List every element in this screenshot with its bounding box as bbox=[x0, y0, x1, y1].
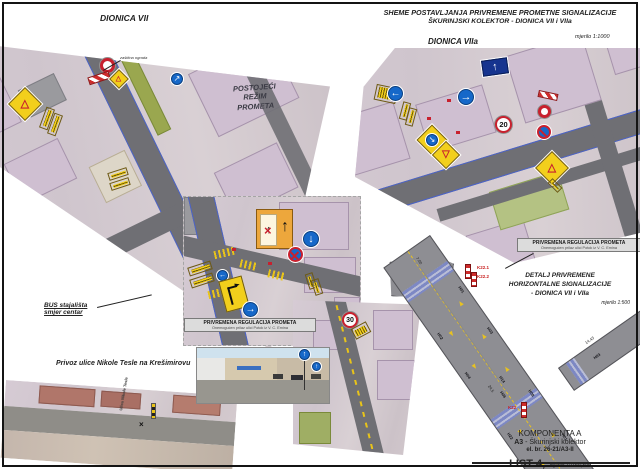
temp-regulation-subtitle: Onemogućen prilaz ulici Potok iz V. C. E… bbox=[187, 326, 313, 330]
marker-label: H01 bbox=[457, 285, 465, 294]
lane-arrow-icon bbox=[449, 331, 455, 337]
mandatory-direction-sign: → bbox=[458, 89, 474, 105]
sign-position-mark bbox=[232, 248, 236, 251]
list-scale: mjerilo 1:1000,500 bbox=[550, 463, 591, 469]
lane-arrow-icon bbox=[472, 364, 478, 370]
elaborate-number: el. br. 26-21/A3-II bbox=[470, 447, 630, 453]
speed-limit-20-sign: 20 bbox=[495, 116, 512, 133]
marker-label: H02 bbox=[436, 332, 444, 341]
plan-sheet: H30 H01 H02 H03 H04 H14 H06 H08 H22 H01 … bbox=[0, 0, 640, 469]
photo-roundabout-sign: ↑ bbox=[312, 362, 321, 371]
arrow-up-icon: ↑ bbox=[315, 364, 318, 370]
label-dionica-viia: DIONICA VIIa bbox=[428, 37, 478, 46]
slash-icon bbox=[539, 129, 547, 137]
cross-road bbox=[0, 201, 192, 334]
mandatory-direction-sign: ↓ bbox=[303, 231, 319, 247]
warning-triangle-icon: △ bbox=[116, 75, 121, 82]
pedestrian-crossing bbox=[566, 358, 589, 385]
warning-triangle-icon: △ bbox=[21, 99, 29, 110]
project-code: A3 bbox=[514, 439, 523, 446]
photo-car bbox=[311, 374, 321, 379]
existing-regime-label: POSTOJEĆI REŽIM PROMETA bbox=[212, 80, 298, 114]
sign-position-mark bbox=[456, 131, 460, 134]
speed-limit-20-value: 20 bbox=[499, 121, 507, 129]
arrow-up-icon: ↑ bbox=[491, 61, 498, 74]
project-label: A3 - Škurinjski kolektor bbox=[470, 439, 630, 446]
building-block bbox=[377, 360, 415, 400]
k22-label: K22.1 bbox=[477, 265, 489, 270]
bus-stop-note-line2: smjer centar bbox=[44, 309, 87, 316]
detail-title-block: DETALJ PRIVREMENE HORIZONTALNE SIGNALIZA… bbox=[490, 272, 630, 307]
arrow-upright-icon: ↗ bbox=[174, 75, 181, 83]
photo-awning bbox=[237, 366, 261, 370]
leader-line bbox=[97, 294, 152, 308]
cross-mark: × bbox=[139, 420, 144, 429]
detour-info-panel: ↑ × bbox=[260, 214, 277, 246]
map-panel-dionica-viia bbox=[355, 48, 640, 263]
building-block bbox=[4, 138, 78, 205]
sign-position-mark bbox=[427, 117, 431, 120]
project-name: - Škurinjski kolektor bbox=[523, 439, 586, 446]
component-label: KOMPONENTA A bbox=[470, 429, 630, 438]
building-block bbox=[373, 310, 413, 350]
label-dionica-vii: DIONICA VII bbox=[100, 13, 148, 23]
mandatory-direction-sign: ← bbox=[388, 86, 403, 101]
lane-arrow-icon bbox=[504, 366, 510, 372]
arrow-left-icon: ← bbox=[219, 272, 226, 279]
mandatory-direction-sign: → bbox=[243, 302, 258, 317]
arrow-downright-icon: ↘ bbox=[429, 136, 436, 144]
building-block bbox=[598, 48, 640, 75]
sheet-title-line2: ŠKURINJSKI KOLEKTOR - DIONICA VII i VIIa bbox=[372, 18, 628, 25]
no-stopping-sign bbox=[288, 247, 303, 262]
photo-car bbox=[273, 374, 283, 379]
photo-mandatory-direction-sign: ↑ bbox=[299, 349, 310, 360]
k22-label: K22.2 bbox=[477, 274, 489, 279]
sign-position-mark bbox=[447, 99, 451, 102]
temp-regulation-box-right: PRIVREMENA REGULACIJA PROMETA Onemogućen… bbox=[517, 238, 640, 252]
arrow-left-icon: ← bbox=[391, 89, 401, 99]
yield-triangle-icon: ▽ bbox=[442, 150, 450, 160]
arrow-down-icon: ↓ bbox=[308, 234, 314, 245]
photo-sign-pole bbox=[304, 356, 305, 390]
marker-label: H03 bbox=[486, 326, 494, 335]
photo-zebra-crossing bbox=[215, 380, 291, 402]
sheet-title-line1: SHEME POSTAVLJANJA PRIVREMENE PROMETNE S… bbox=[372, 8, 628, 17]
detail-title-line3: - DIONICA VII i VIIa bbox=[490, 290, 630, 299]
no-traffic-sign bbox=[538, 105, 551, 118]
temp-regulation-box-left: PRIVREMENA REGULACIJA PROMETA Onemogućen… bbox=[184, 318, 316, 332]
detour-route-arrowhead-icon bbox=[234, 282, 240, 287]
red-roof-block bbox=[38, 385, 95, 407]
arrow-right-icon: → bbox=[246, 305, 256, 315]
cancel-cross-icon: × bbox=[264, 223, 272, 238]
detail-branch-band: H03 bbox=[558, 307, 640, 391]
detail-title-line2: HORIZONTALNE SIGNALIZACIJE bbox=[490, 281, 630, 290]
guard-post-marker bbox=[151, 403, 156, 419]
building-block bbox=[233, 40, 322, 57]
detail-title-line1: DETALJ PRIVREMENE bbox=[490, 272, 630, 281]
mandatory-direction-sign: ↗ bbox=[171, 73, 183, 85]
no-parking-sign bbox=[537, 125, 551, 139]
k22-post bbox=[521, 402, 527, 418]
list-number: LIST 4, bbox=[509, 458, 545, 469]
detour-info-sign: ↑ × ↑ bbox=[256, 209, 293, 249]
temp-regulation-subtitle: Onemogućen prilaz ulici Potok iz V. C. E… bbox=[520, 246, 638, 250]
detour-route-icon bbox=[227, 285, 241, 305]
mandatory-direction-inset: ↘ bbox=[426, 134, 438, 146]
building-block bbox=[33, 311, 140, 350]
marker-label: H03 bbox=[592, 352, 601, 360]
aerial-texture bbox=[355, 48, 640, 263]
arrow-up-icon: ↑ bbox=[281, 218, 289, 236]
sign-position-mark bbox=[268, 262, 272, 265]
sheet-title-scale: mjerilo 1:1000 bbox=[575, 34, 610, 40]
warning-triangle-icon: △ bbox=[548, 163, 556, 174]
photo-buildings bbox=[197, 358, 329, 380]
lane-arrow-icon bbox=[481, 333, 487, 339]
marker-label: H04 bbox=[464, 371, 472, 380]
arrow-right-icon: → bbox=[461, 92, 472, 103]
arrow-up-icon: ↑ bbox=[303, 351, 307, 358]
street-photo: ↑ ↑ bbox=[196, 347, 330, 404]
barrier-note: zaštitna ograda bbox=[120, 55, 147, 60]
detail-scale: mjerilo 1:500 bbox=[490, 300, 630, 307]
photo-car bbox=[291, 375, 303, 380]
title-block: KOMPONENTA A A3 - Škurinjski kolektor el… bbox=[470, 429, 630, 469]
privoz-note: Privoz ulice Nikole Tesle na Krešimirovu bbox=[56, 360, 190, 367]
green-area bbox=[299, 412, 331, 444]
bus-stop-note-line1: BUS stajališta bbox=[44, 302, 87, 309]
list-row: LIST 4, mjerilo 1:1000,500 bbox=[470, 454, 630, 469]
lane-arrow-icon bbox=[458, 300, 464, 306]
speed-limit-30-value: 30 bbox=[346, 317, 354, 324]
bus-stop-note: BUS stajališta smjer centar bbox=[44, 302, 87, 316]
k22-label: K22 bbox=[508, 405, 516, 410]
